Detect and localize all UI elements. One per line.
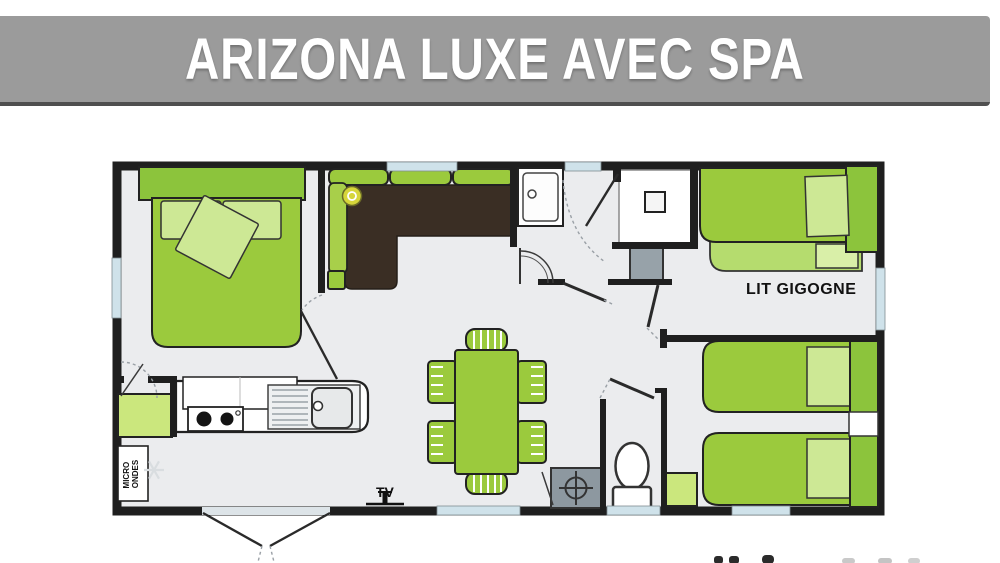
stool [666, 473, 697, 506]
washing-machine [551, 468, 601, 508]
kitchen-counter [176, 377, 368, 432]
dining-chair [517, 361, 546, 403]
stove [188, 407, 243, 431]
dining-chair [466, 472, 507, 494]
dining-chair [428, 421, 457, 463]
floor-plan: MICRO ONDES [0, 0, 1000, 563]
watermark-fragments [714, 555, 920, 563]
toilet [613, 443, 651, 510]
shower [619, 170, 691, 244]
dining-chair [466, 329, 507, 351]
kitchen-sink [268, 385, 360, 429]
bathroom-sink [518, 168, 563, 226]
single-bed-with-trundle [700, 166, 878, 271]
svg-text:MICRO ONDES: MICRO ONDES [122, 459, 140, 488]
water-heater [630, 248, 663, 281]
dining-chair [517, 421, 546, 463]
fridge [118, 394, 172, 437]
page: ARIZONA LUXE AVEC SPA [0, 0, 1000, 563]
dining-table [455, 350, 518, 474]
trundle-bed-label: LIT GIGOGNE [746, 281, 856, 298]
lamp-icon [343, 187, 362, 206]
nightstand [849, 412, 878, 436]
microwave-label-1: MICRO [122, 462, 131, 489]
microwave-label-2: ONDES [131, 459, 140, 488]
dining-chair [428, 361, 457, 403]
master-bed [139, 167, 305, 347]
